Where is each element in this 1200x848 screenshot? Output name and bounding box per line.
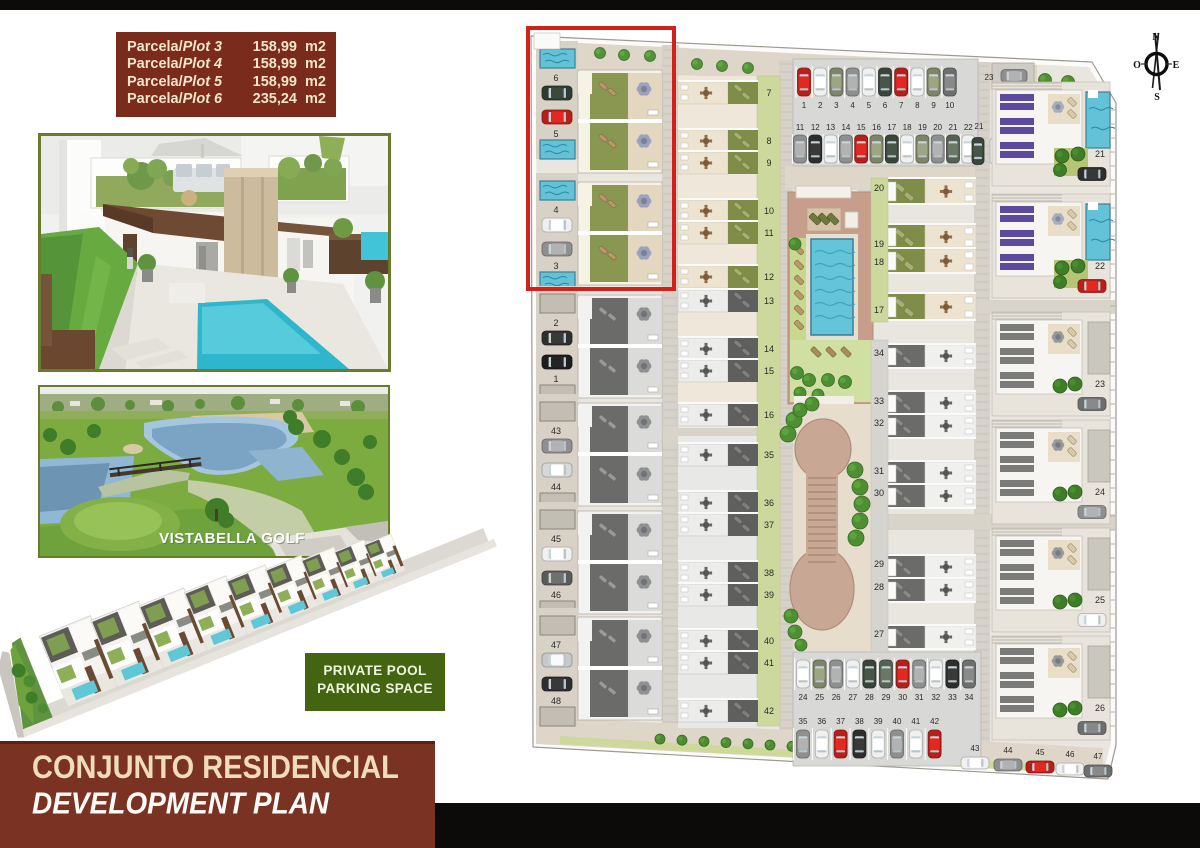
svg-text:32: 32 — [874, 418, 884, 428]
svg-text:5: 5 — [867, 101, 872, 110]
svg-text:N: N — [1152, 32, 1160, 43]
svg-text:22: 22 — [1095, 261, 1105, 271]
svg-text:42: 42 — [764, 706, 774, 716]
svg-text:8: 8 — [766, 136, 771, 146]
svg-text:34: 34 — [874, 348, 884, 358]
svg-text:21: 21 — [1095, 149, 1105, 159]
svg-text:45: 45 — [551, 534, 561, 544]
svg-text:33: 33 — [948, 693, 957, 702]
svg-text:14: 14 — [764, 344, 774, 354]
svg-text:7: 7 — [766, 88, 771, 98]
svg-text:42: 42 — [930, 717, 939, 726]
svg-text:39: 39 — [874, 717, 883, 726]
svg-text:24: 24 — [799, 693, 808, 702]
svg-text:E: E — [1173, 60, 1180, 71]
svg-text:25: 25 — [1095, 595, 1105, 605]
svg-text:37: 37 — [836, 717, 845, 726]
svg-text:31: 31 — [915, 693, 924, 702]
svg-text:4: 4 — [850, 101, 855, 110]
svg-text:41: 41 — [911, 717, 920, 726]
svg-text:13: 13 — [826, 123, 835, 132]
svg-text:13: 13 — [764, 296, 774, 306]
svg-text:20: 20 — [933, 123, 942, 132]
svg-text:41: 41 — [764, 658, 774, 668]
svg-text:23: 23 — [1095, 379, 1105, 389]
svg-text:10: 10 — [764, 206, 774, 216]
svg-text:40: 40 — [893, 717, 902, 726]
svg-text:28: 28 — [865, 693, 874, 702]
svg-text:40: 40 — [764, 636, 774, 646]
svg-text:36: 36 — [764, 498, 774, 508]
svg-text:4: 4 — [553, 205, 558, 215]
svg-text:2: 2 — [818, 101, 823, 110]
svg-text:17: 17 — [874, 305, 884, 315]
svg-text:11: 11 — [796, 123, 805, 132]
svg-text:35: 35 — [799, 717, 808, 726]
svg-text:30: 30 — [898, 693, 907, 702]
svg-text:21: 21 — [975, 122, 984, 131]
svg-text:6: 6 — [553, 73, 558, 83]
svg-text:1: 1 — [802, 101, 807, 110]
svg-text:22: 22 — [964, 123, 973, 132]
svg-text:45: 45 — [1036, 748, 1045, 757]
svg-text:31: 31 — [874, 466, 884, 476]
svg-text:S: S — [1154, 92, 1160, 103]
svg-text:44: 44 — [551, 482, 561, 492]
svg-text:12: 12 — [811, 123, 820, 132]
svg-text:3: 3 — [553, 261, 558, 271]
svg-text:16: 16 — [764, 410, 774, 420]
svg-text:14: 14 — [841, 123, 850, 132]
svg-text:18: 18 — [903, 123, 912, 132]
svg-text:43: 43 — [971, 744, 980, 753]
svg-text:38: 38 — [764, 568, 774, 578]
svg-text:34: 34 — [965, 693, 974, 702]
svg-text:48: 48 — [551, 696, 561, 706]
svg-text:35: 35 — [764, 450, 774, 460]
svg-text:1: 1 — [553, 374, 558, 384]
svg-text:28: 28 — [874, 582, 884, 592]
svg-text:46: 46 — [1066, 750, 1075, 759]
svg-text:9: 9 — [766, 158, 771, 168]
svg-text:24: 24 — [1095, 487, 1105, 497]
svg-text:26: 26 — [1095, 703, 1105, 713]
svg-text:47: 47 — [551, 640, 561, 650]
svg-text:46: 46 — [551, 590, 561, 600]
svg-text:7: 7 — [899, 101, 904, 110]
svg-text:2: 2 — [553, 318, 558, 328]
svg-text:39: 39 — [764, 590, 774, 600]
svg-text:15: 15 — [857, 123, 866, 132]
svg-text:11: 11 — [764, 228, 773, 238]
svg-text:O: O — [1133, 60, 1141, 71]
svg-text:10: 10 — [945, 101, 954, 110]
svg-text:23: 23 — [985, 73, 994, 82]
svg-text:21: 21 — [949, 123, 958, 132]
svg-text:16: 16 — [872, 123, 881, 132]
svg-text:44: 44 — [1004, 746, 1013, 755]
svg-text:37: 37 — [764, 520, 774, 530]
svg-text:3: 3 — [834, 101, 839, 110]
svg-text:30: 30 — [874, 488, 884, 498]
svg-text:20: 20 — [874, 183, 884, 193]
svg-text:29: 29 — [874, 559, 884, 569]
svg-text:12: 12 — [764, 272, 774, 282]
svg-text:19: 19 — [874, 239, 884, 249]
svg-text:6: 6 — [883, 101, 888, 110]
svg-text:9: 9 — [931, 101, 936, 110]
svg-text:18: 18 — [874, 257, 884, 267]
svg-text:38: 38 — [855, 717, 864, 726]
svg-text:27: 27 — [848, 693, 857, 702]
svg-text:19: 19 — [918, 123, 927, 132]
svg-text:15: 15 — [764, 366, 774, 376]
svg-text:32: 32 — [931, 693, 940, 702]
svg-text:25: 25 — [815, 693, 824, 702]
svg-text:5: 5 — [553, 129, 558, 139]
svg-text:43: 43 — [551, 426, 561, 436]
svg-text:47: 47 — [1094, 752, 1103, 761]
svg-text:33: 33 — [874, 396, 884, 406]
svg-text:27: 27 — [874, 629, 884, 639]
svg-text:8: 8 — [915, 101, 920, 110]
svg-text:36: 36 — [817, 717, 826, 726]
svg-text:26: 26 — [832, 693, 841, 702]
svg-text:17: 17 — [887, 123, 896, 132]
svg-text:29: 29 — [882, 693, 891, 702]
